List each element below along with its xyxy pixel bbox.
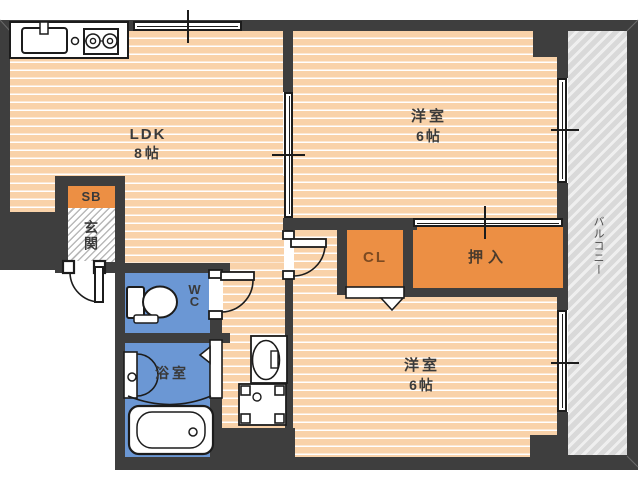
miter-top-right [627, 20, 638, 31]
closet-folding-door [346, 287, 404, 298]
shoebox-label: SB [68, 185, 115, 207]
bedroom2-door-swing [293, 247, 325, 276]
kitchen-faucet [40, 22, 48, 34]
door-jamb [209, 270, 222, 278]
bedroom2-name: 洋室 [404, 357, 440, 374]
stove-burner [86, 34, 100, 48]
washer-pan-corner [241, 414, 250, 423]
bath-door-fold-arrow [200, 347, 210, 363]
ldk-label: LDK 8帖 [98, 126, 198, 163]
entrance-door-leaf [95, 267, 103, 302]
balcony-label: バルコニー [584, 198, 612, 293]
bedroom2-size: 6帖 [382, 375, 462, 395]
ldk-name: LDK [130, 126, 167, 143]
closet-label: CL [347, 230, 403, 285]
bedroom2-label: 洋室 6帖 [382, 354, 462, 395]
miter-top-left [0, 20, 10, 31]
bathtub-drain [189, 428, 197, 436]
door-jamb [283, 271, 294, 279]
bath-door-panel [210, 340, 222, 398]
washer-pan-corner [275, 386, 284, 395]
kitchen-drain [72, 38, 79, 45]
washer-pan-corner [275, 414, 284, 423]
bedroom1-size: 6帖 [389, 126, 469, 146]
washbasin-faucet [271, 351, 278, 368]
bath-curtain-arc [128, 396, 211, 405]
wc-door-swing [222, 280, 253, 312]
washer-pan-corner [241, 386, 250, 395]
bath-knob [128, 373, 136, 381]
toilet-bowl [143, 287, 177, 318]
floorplan-canvas: LDK 8帖 洋室 6帖 洋室 6帖 CL 押入 WC 浴室 玄関 SB バルコ… [0, 0, 640, 480]
bath-label: 浴室 [142, 363, 202, 383]
bedroom1-name: 洋室 [411, 108, 447, 125]
bathtub [129, 406, 213, 454]
oshiire-label: 押入 [413, 227, 563, 285]
entrance-label: 玄関 [72, 207, 110, 265]
toilet-base [134, 315, 158, 323]
door-jamb [283, 231, 294, 239]
bedroom1-label: 洋室 6帖 [389, 105, 469, 146]
ldk-size: 8帖 [98, 143, 198, 163]
washer-pan-drain [253, 393, 261, 401]
bedroom2-door-leaf [291, 239, 326, 247]
wc-label: WC [186, 284, 203, 308]
wc-door-leaf [221, 272, 254, 280]
closet-door-fold-arrow [381, 298, 403, 310]
miter-bottom-right [627, 456, 638, 467]
toilet-tank [127, 287, 144, 318]
door-jamb [209, 311, 222, 319]
stove-burner [103, 34, 117, 48]
